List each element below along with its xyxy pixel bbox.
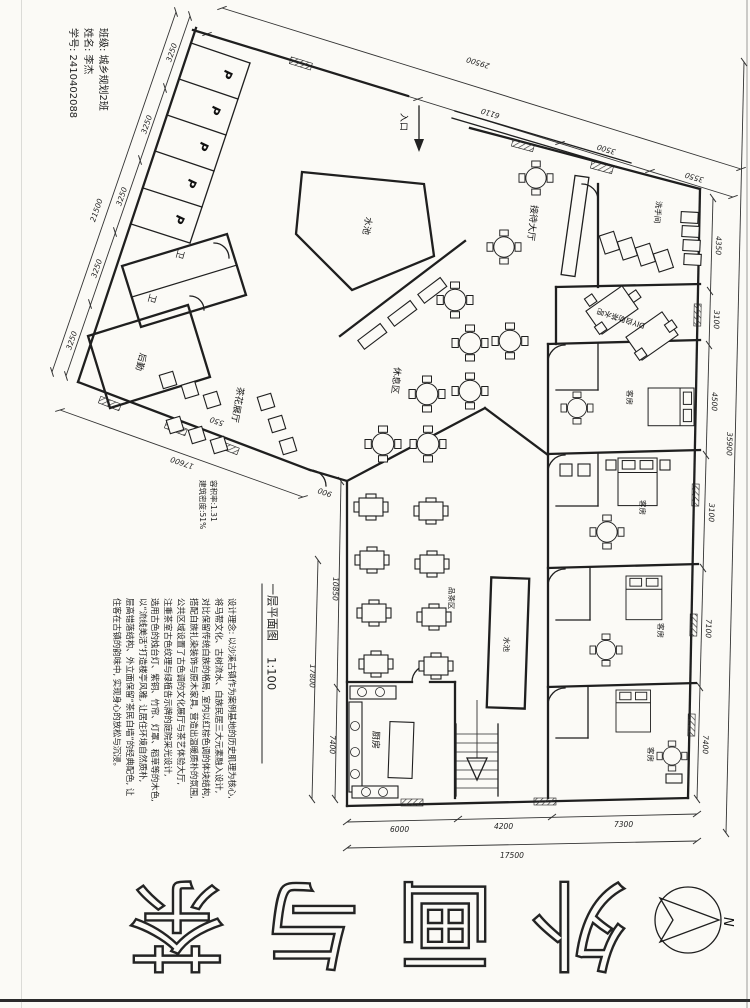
description-line: 对比保留传统白族的格局, 室内以红棕色调的体块结构, <box>200 598 213 862</box>
reception-area: 接待大厅 <box>487 161 589 276</box>
dim-stall: 3250 <box>114 186 129 207</box>
student-class: 班级: 城乡规划2班 <box>95 28 110 220</box>
dim-top-seg: 3500 <box>596 142 617 156</box>
room-label-guest: 客房 <box>646 747 657 762</box>
description-line: 层高错落结构、外立面保留“茶民白墙”的经典配色, 让 <box>123 598 136 862</box>
scanned-floor-plan-sheet: { "student_info": { "line1": "班级: 城乡规划2班… <box>0 0 750 1008</box>
dim-top-total: 29500 <box>465 55 491 71</box>
paper-left-edge <box>21 0 22 1008</box>
parking-area: P P P P P <box>131 43 250 243</box>
plan-title-block: 一层平面图 1:100 <box>262 584 299 764</box>
room-label-reception: 接待大厅 <box>525 204 541 241</box>
design-description-block: 设计理念: 以沙溪古镇作为案例基地的历史肌理为核心, 将马帮文化、古树流水、白族… <box>68 598 238 862</box>
calligraphy-char: 外 <box>530 874 628 972</box>
dim-blockleft-total: 17800 <box>308 664 317 688</box>
plan-title-text: 一层平面图 <box>265 584 281 642</box>
room-label-pond2: 水池 <box>502 637 513 653</box>
dim-stall: 3250 <box>139 114 154 135</box>
plan-scale: 1:100 <box>265 657 279 690</box>
dining-area: 品茶区 <box>354 494 457 679</box>
staircase <box>456 700 498 796</box>
dim-right-seg: 7100 <box>704 619 713 638</box>
description-line: 住客在古镇的韵味中, 实现身心的放松与沉浸。 <box>110 598 123 862</box>
dim-right-seg: 3100 <box>707 503 716 522</box>
parking-p: P <box>171 213 187 227</box>
calligraphy-char: 与 <box>262 874 360 972</box>
dim-bottom-seg: 4200 <box>494 822 513 831</box>
description-line: 搭配白族扎染装饰与原木家具, 营造出温暖质朴的氛围, <box>187 598 200 862</box>
paper-bottom-edge <box>0 999 750 1002</box>
room-label-wc: 卫 <box>145 293 157 304</box>
kitchen-area: 厨房 <box>349 686 414 798</box>
student-id: 学号: 2410402088 <box>65 28 80 220</box>
dim-small: 550 <box>208 415 225 428</box>
density-note: 建筑密度:51% <box>197 480 208 560</box>
entry-arrow: 入口 <box>398 106 424 152</box>
dim-stall: 3250 <box>89 258 104 279</box>
description-line: 选用古色的烛台灯、紫铜、竹帘、灯罩、稻草等的木色, <box>149 598 162 862</box>
dim-stall: 3250 <box>164 42 179 63</box>
dim-blockleft-seg: 7400 <box>328 735 337 754</box>
description-line: 注重茶室古色纹理与绿植告示牌的庭院采光设计, <box>161 598 174 862</box>
lounge-area: 休息区 <box>358 278 528 462</box>
dim-right-total: 35900 <box>725 432 734 456</box>
dim-top-seg: 6110 <box>480 106 501 120</box>
room-label-guest: 客房 <box>656 623 667 638</box>
entry-label: 入口 <box>398 113 410 131</box>
room-label-logistics: 后勤 <box>133 352 149 373</box>
description-line: 以“流线美活”打造楼亭风雅, 让居住环境自然质朴, <box>136 598 149 862</box>
dim-right-seg: 4500 <box>710 392 719 411</box>
parking-p: P <box>207 104 223 118</box>
dim-stall: 3250 <box>64 330 79 351</box>
north-label: N <box>720 917 735 927</box>
calligraphy-char: 画 <box>396 874 494 972</box>
dim-small: 900 <box>316 486 333 499</box>
parking-p: P <box>183 177 199 191</box>
parking-p: P <box>195 140 211 154</box>
room-label-exhibition: 茶花展厅 <box>229 386 247 424</box>
student-name: 姓名: 李杰 <box>80 28 95 220</box>
dim-bottom-seg: 6000 <box>390 825 409 834</box>
calligraphy-title: 茶 与 画 外 <box>128 848 628 998</box>
room-label-restroom: 洗手间 <box>652 201 664 224</box>
left-wing-rooms: 卫 卫 后勤 水池 茶花展厅 <box>88 172 434 455</box>
room-label-lounge: 休息区 <box>389 366 404 394</box>
parking-p: P <box>219 68 235 82</box>
courtyard-pond: 水池 <box>487 577 530 708</box>
dim-right-seg: 7400 <box>701 735 710 754</box>
plot-ratio-note: 容积率:1.31 <box>208 480 219 560</box>
calligraphy-char: 茶 <box>128 874 226 972</box>
room-label-pond: 水池 <box>360 216 375 236</box>
paper-right-edge <box>746 0 748 1008</box>
student-info-block: 班级: 城乡规划2班 姓名: 李杰 学号: 2410402088 <box>60 28 110 220</box>
restroom-area: 洗手间 <box>599 201 701 273</box>
dim-blockleft-seg: 10850 <box>331 577 340 601</box>
description-line: 将马帮文化、古树流水、白族民居三大元素融入设计, <box>212 598 225 862</box>
north-compass: N <box>655 887 735 953</box>
room-label-tea-seating: 品茶区 <box>446 587 457 610</box>
room-label-kitchen: 厨房 <box>370 731 383 749</box>
guest-rooms: 客房 客房 客房 客房 <box>556 344 694 783</box>
dim-bottom-seg: 7300 <box>614 820 633 829</box>
description-line: 公共区域设置了古色调的文化展厅与茶艺体验大厅, <box>174 598 187 862</box>
description-line: 设计理念: 以沙溪古镇作为案例基地的历史肌理为核心, <box>225 598 238 862</box>
room-label-guest: 客房 <box>638 500 649 515</box>
room-label-guest: 客房 <box>625 390 636 405</box>
dim-right-seg: 3100 <box>712 310 721 329</box>
area-note-block: 容积率:1.31 建筑密度:51% <box>192 480 218 560</box>
dim-right-seg: 4350 <box>714 236 723 255</box>
